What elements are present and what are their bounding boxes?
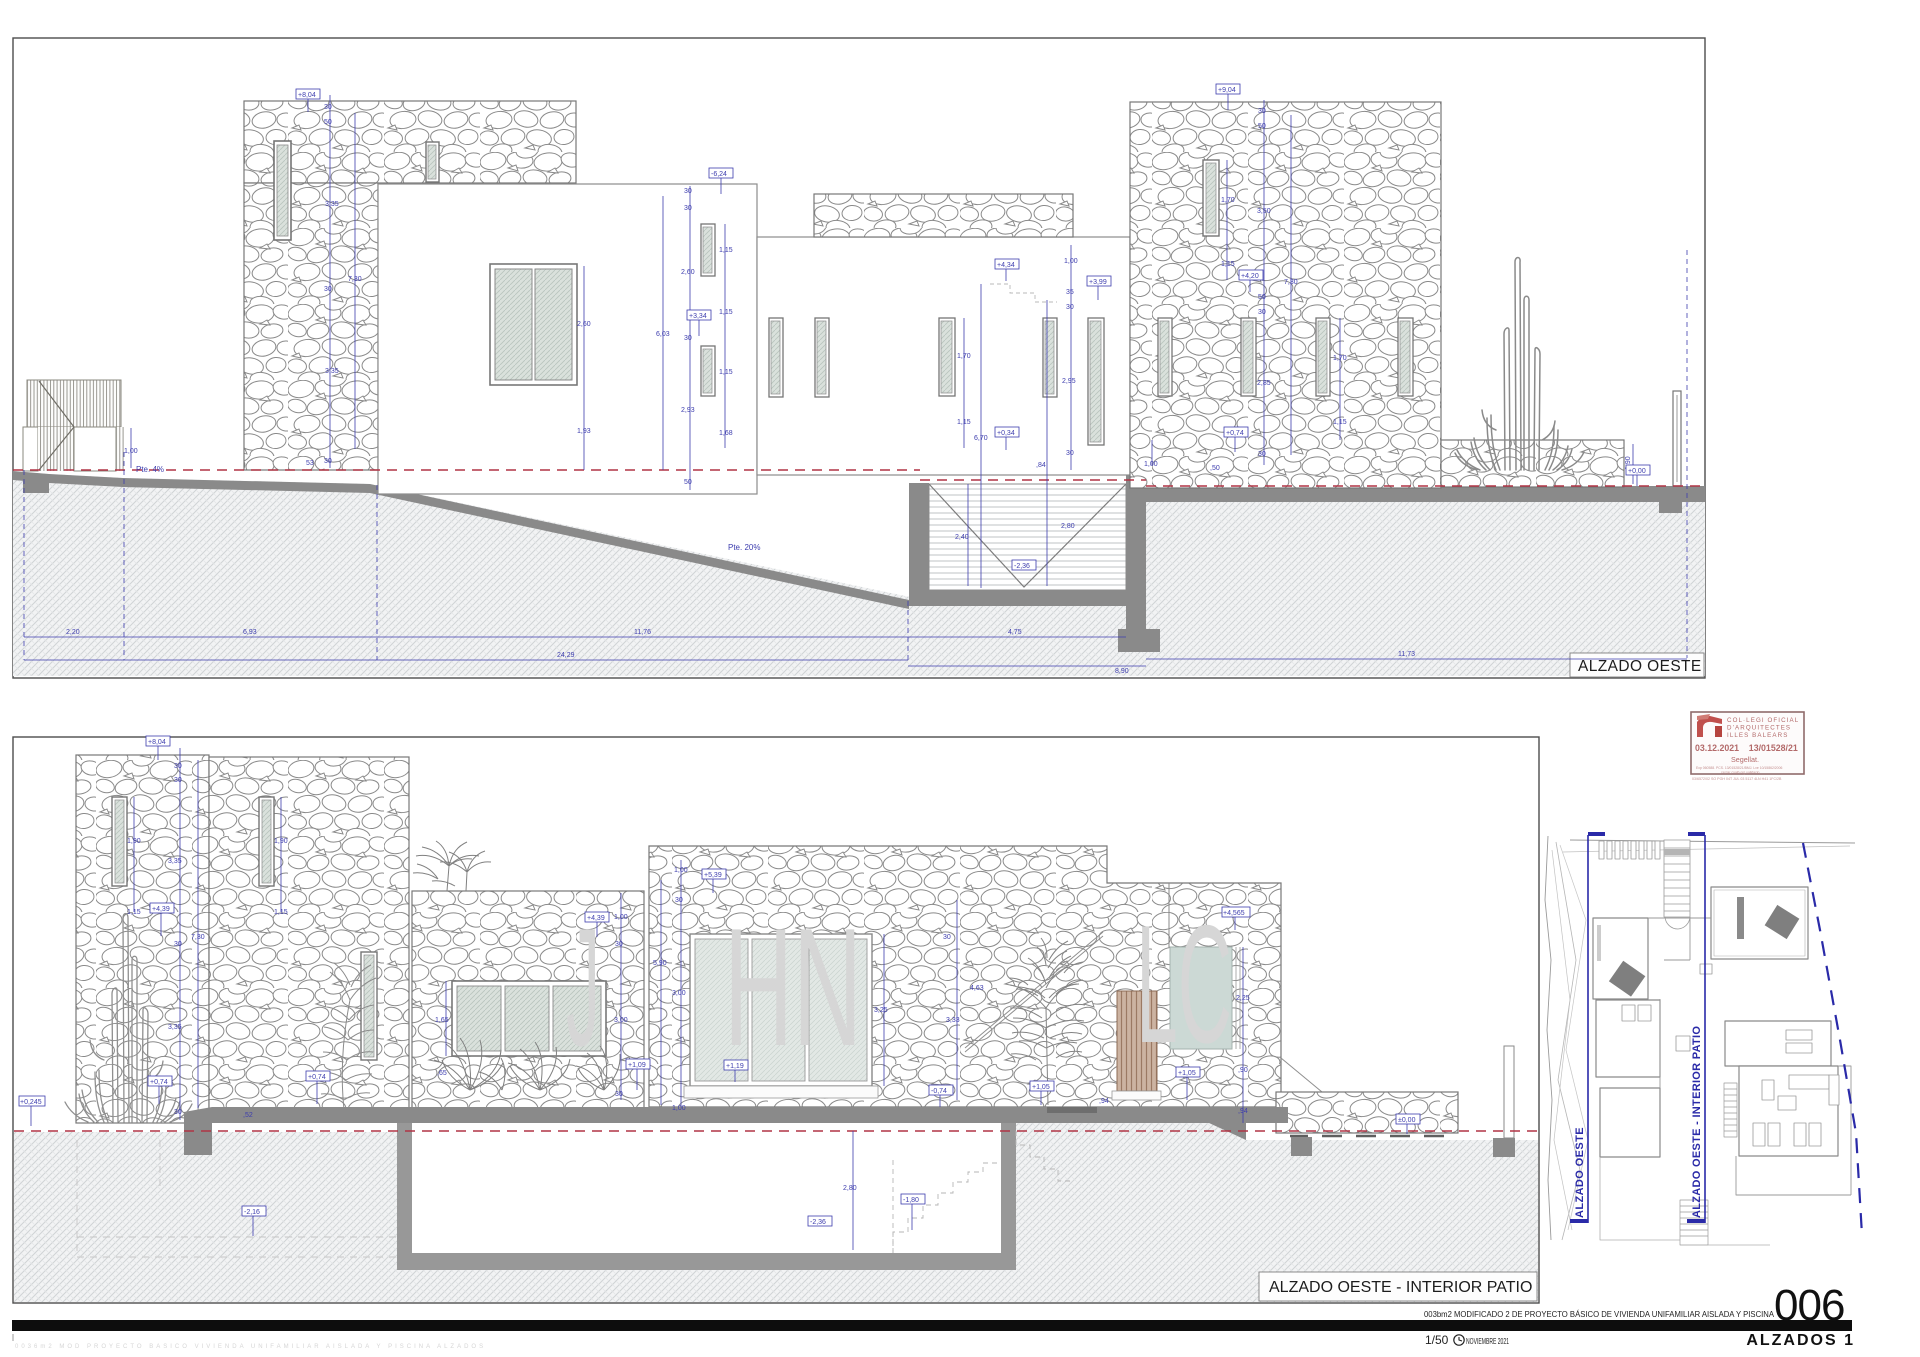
svg-text:24,29: 24,29 (557, 652, 575, 659)
svg-text:+8,04: +8,04 (148, 739, 166, 746)
svg-text:03/6572/02 SO PGH 04T JUL 03 5: 03/6572/02 SO PGH 04T JUL 03 5117 4LN H4… (1692, 777, 1782, 781)
svg-text:3,35: 3,35 (325, 201, 339, 208)
svg-text:3,25: 3,25 (874, 1007, 888, 1014)
svg-text:6,70: 6,70 (974, 435, 988, 442)
svg-text:2,25: 2,25 (1236, 995, 1250, 1002)
svg-text:-2,16: -2,16 (244, 1209, 260, 1216)
svg-text:0036m2 MOD PROYECTO BASICO VIV: 0036m2 MOD PROYECTO BASICO VIVIENDA UNIF… (15, 1344, 486, 1350)
svg-text:-2,36: -2,36 (810, 1219, 826, 1226)
svg-text:ALZADO OESTE - INTERIOR PATIO: ALZADO OESTE - INTERIOR PATIO (1691, 1026, 1703, 1218)
svg-text:ALZADO OESTE - INTERIOR PATIO: ALZADO OESTE - INTERIOR PATIO (1269, 1279, 1532, 1296)
svg-text:D’ARQUITECTES: D’ARQUITECTES (1727, 725, 1791, 732)
svg-text:+0,74: +0,74 (150, 1079, 168, 1086)
svg-text:NOVIEMBRE 2021: NOVIEMBRE 2021 (1466, 1337, 1509, 1346)
svg-text:30: 30 (1066, 304, 1074, 311)
svg-text:30: 30 (615, 1091, 623, 1098)
svg-text:50: 50 (684, 479, 692, 486)
svg-text:30: 30 (1258, 309, 1266, 316)
svg-text:1,15: 1,15 (719, 369, 733, 376)
svg-text:Exp 060588. PCS. 13/01528/21/B: Exp 060588. PCS. 13/01528/21/BMJ. Lxe 10… (1696, 766, 1782, 770)
svg-text:30: 30 (684, 205, 692, 212)
svg-text:1,00: 1,00 (672, 1105, 686, 1112)
svg-text:HN: HN (724, 893, 862, 1081)
svg-text:ALZADO OESTE: ALZADO OESTE (1574, 1127, 1586, 1218)
svg-text:+1,09: +1,09 (628, 1062, 646, 1069)
svg-text:53: 53 (306, 460, 314, 467)
svg-text:1,00: 1,00 (124, 448, 138, 455)
svg-text:1,70: 1,70 (1333, 355, 1347, 362)
svg-text:+5,39: +5,39 (704, 872, 722, 879)
svg-text:+9,04: +9,04 (1218, 87, 1236, 94)
svg-text:1,00: 1,00 (1064, 258, 1078, 265)
svg-text:+4,39: +4,39 (152, 906, 170, 913)
svg-text:1,90: 1,90 (274, 838, 288, 845)
svg-text:003bm2 MODIFICADO 2 DE PROYE: 003bm2 MODIFICADO 2 DE PROYECTO BÁSICO D… (1424, 1309, 1774, 1319)
svg-text:+3,34: +3,34 (689, 313, 707, 320)
svg-text:3,33: 3,33 (946, 1017, 960, 1024)
svg-text:ALZADOS 1: ALZADOS 1 (1746, 1332, 1855, 1349)
svg-text:30: 30 (675, 897, 683, 904)
svg-text:30: 30 (684, 188, 692, 195)
svg-text:2,60: 2,60 (577, 321, 591, 328)
svg-text:50: 50 (1258, 294, 1266, 301)
svg-text:-2,36: -2,36 (1014, 563, 1030, 570)
svg-text:2,85: 2,85 (1257, 380, 1271, 387)
svg-text:5,90: 5,90 (653, 960, 667, 967)
svg-text:11,73: 11,73 (1398, 651, 1415, 658)
svg-text:30: 30 (174, 941, 182, 948)
svg-text:30: 30 (1258, 451, 1266, 458)
svg-text:6,03: 6,03 (656, 331, 670, 338)
svg-text:30: 30 (174, 763, 182, 770)
svg-text:30: 30 (1258, 108, 1266, 115)
svg-text:1,65: 1,65 (435, 1017, 449, 1024)
svg-text:30: 30 (324, 286, 332, 293)
svg-text:J: J (566, 893, 600, 1081)
svg-text:+0,34: +0,34 (997, 430, 1015, 437)
svg-text:+3,99: +3,99 (1089, 279, 1107, 286)
svg-text:4,75: 4,75 (1008, 629, 1022, 636)
svg-text:+4,34: +4,34 (997, 262, 1015, 269)
svg-text:,65: ,65 (437, 1070, 447, 1077)
svg-text:6,93: 6,93 (243, 629, 257, 636)
svg-text:2,80: 2,80 (843, 1185, 857, 1192)
svg-text:11,76: 11,76 (634, 629, 651, 636)
svg-text:1,15: 1,15 (719, 309, 733, 316)
svg-text:,84: ,84 (1036, 462, 1046, 469)
svg-text:1,15: 1,15 (957, 419, 971, 426)
svg-text:1/50: 1/50 (1425, 1333, 1449, 1347)
svg-text:2,80: 2,80 (1061, 523, 1075, 530)
svg-text:LC: LC (1136, 890, 1232, 1078)
svg-text:3,35: 3,35 (168, 1024, 182, 1031)
svg-text:7,30: 7,30 (348, 276, 362, 283)
svg-text:COL·LEGI OFICIAL: COL·LEGI OFICIAL (1727, 717, 1799, 724)
svg-text:-1,80: -1,80 (903, 1197, 919, 1204)
svg-text:±0,00: ±0,00 (1398, 1117, 1416, 1124)
svg-text:30: 30 (174, 1109, 182, 1116)
svg-text:,94: ,94 (1238, 1108, 1248, 1115)
svg-text:35: 35 (1066, 289, 1074, 296)
svg-text:-6,24: -6,24 (711, 171, 727, 178)
svg-text:+0,00: +0,00 (1628, 468, 1646, 475)
svg-text:-0,74: -0,74 (931, 1088, 947, 1095)
svg-text:2,93: 2,93 (681, 407, 695, 414)
svg-text:ALZADO OESTE: ALZADO OESTE (1578, 658, 1702, 675)
svg-text:30: 30 (943, 934, 951, 941)
svg-text:,50: ,50 (1210, 465, 1220, 472)
svg-text:1,15: 1,15 (127, 909, 141, 916)
svg-text:8,90: 8,90 (1115, 668, 1129, 675)
svg-text:1,00: 1,00 (674, 867, 688, 874)
svg-text:30: 30 (615, 941, 623, 948)
svg-text:1,15: 1,15 (719, 247, 733, 254)
svg-text:006: 006 (1774, 1281, 1844, 1330)
svg-text:1,15: 1,15 (274, 909, 288, 916)
svg-text:30: 30 (324, 458, 332, 465)
svg-text:1,68: 1,68 (719, 430, 733, 437)
svg-text:ILLES BALEARS: ILLES BALEARS (1727, 732, 1788, 739)
svg-text:2,95: 2,95 (1062, 378, 1076, 385)
svg-text:Segellat.: Segellat. (1731, 755, 1759, 764)
svg-text:30: 30 (174, 777, 182, 784)
svg-text:Pte. 20%: Pte. 20% (728, 543, 760, 552)
svg-text:cercar coaib org validacio: cercar coaib org validacio (1721, 771, 1760, 775)
svg-text:1,15: 1,15 (1333, 419, 1347, 426)
svg-text:1,70: 1,70 (1221, 197, 1235, 204)
svg-text:30: 30 (324, 104, 332, 111)
svg-text:1,00: 1,00 (614, 914, 628, 921)
svg-text:30: 30 (1066, 450, 1074, 457)
svg-text:2,40: 2,40 (955, 534, 969, 541)
svg-text:7,30: 7,30 (191, 934, 205, 941)
svg-text:3,00: 3,00 (614, 1017, 628, 1024)
svg-text:50: 50 (324, 119, 332, 126)
svg-text:+0,74: +0,74 (1226, 430, 1244, 437)
svg-text:+0,74: +0,74 (308, 1074, 326, 1081)
svg-text:3,35: 3,35 (325, 368, 339, 375)
svg-text:,90: ,90 (1238, 1067, 1248, 1074)
svg-text:1,15: 1,15 (1221, 261, 1235, 268)
svg-text:2,20: 2,20 (66, 629, 80, 636)
svg-text:1,90: 1,90 (127, 838, 141, 845)
svg-text:,52: ,52 (243, 1112, 253, 1119)
svg-text:1,00: 1,00 (1144, 461, 1158, 468)
svg-text:03.12.2021 13/01528/21: 03.12.2021 13/01528/21 (1695, 743, 1798, 753)
svg-text:1,93: 1,93 (577, 428, 591, 435)
svg-text:1,70: 1,70 (957, 353, 971, 360)
svg-text:4,63: 4,63 (970, 985, 984, 992)
svg-text:+0,245: +0,245 (20, 1099, 42, 1106)
svg-text:50: 50 (1258, 123, 1266, 130)
svg-text:30: 30 (684, 335, 692, 342)
svg-text:,94: ,94 (1099, 1098, 1109, 1105)
svg-text:7,30: 7,30 (1284, 279, 1298, 286)
svg-text:3,35: 3,35 (168, 858, 182, 865)
svg-text:+8,04: +8,04 (298, 92, 316, 99)
svg-text:+4,20: +4,20 (1241, 273, 1259, 280)
svg-text:+1,05: +1,05 (1032, 1084, 1050, 1091)
svg-text:3,00: 3,00 (672, 990, 686, 997)
svg-text:3,50: 3,50 (1257, 208, 1271, 215)
svg-text:Pte. 4%: Pte. 4% (136, 465, 164, 474)
svg-text:2,60: 2,60 (681, 269, 695, 276)
